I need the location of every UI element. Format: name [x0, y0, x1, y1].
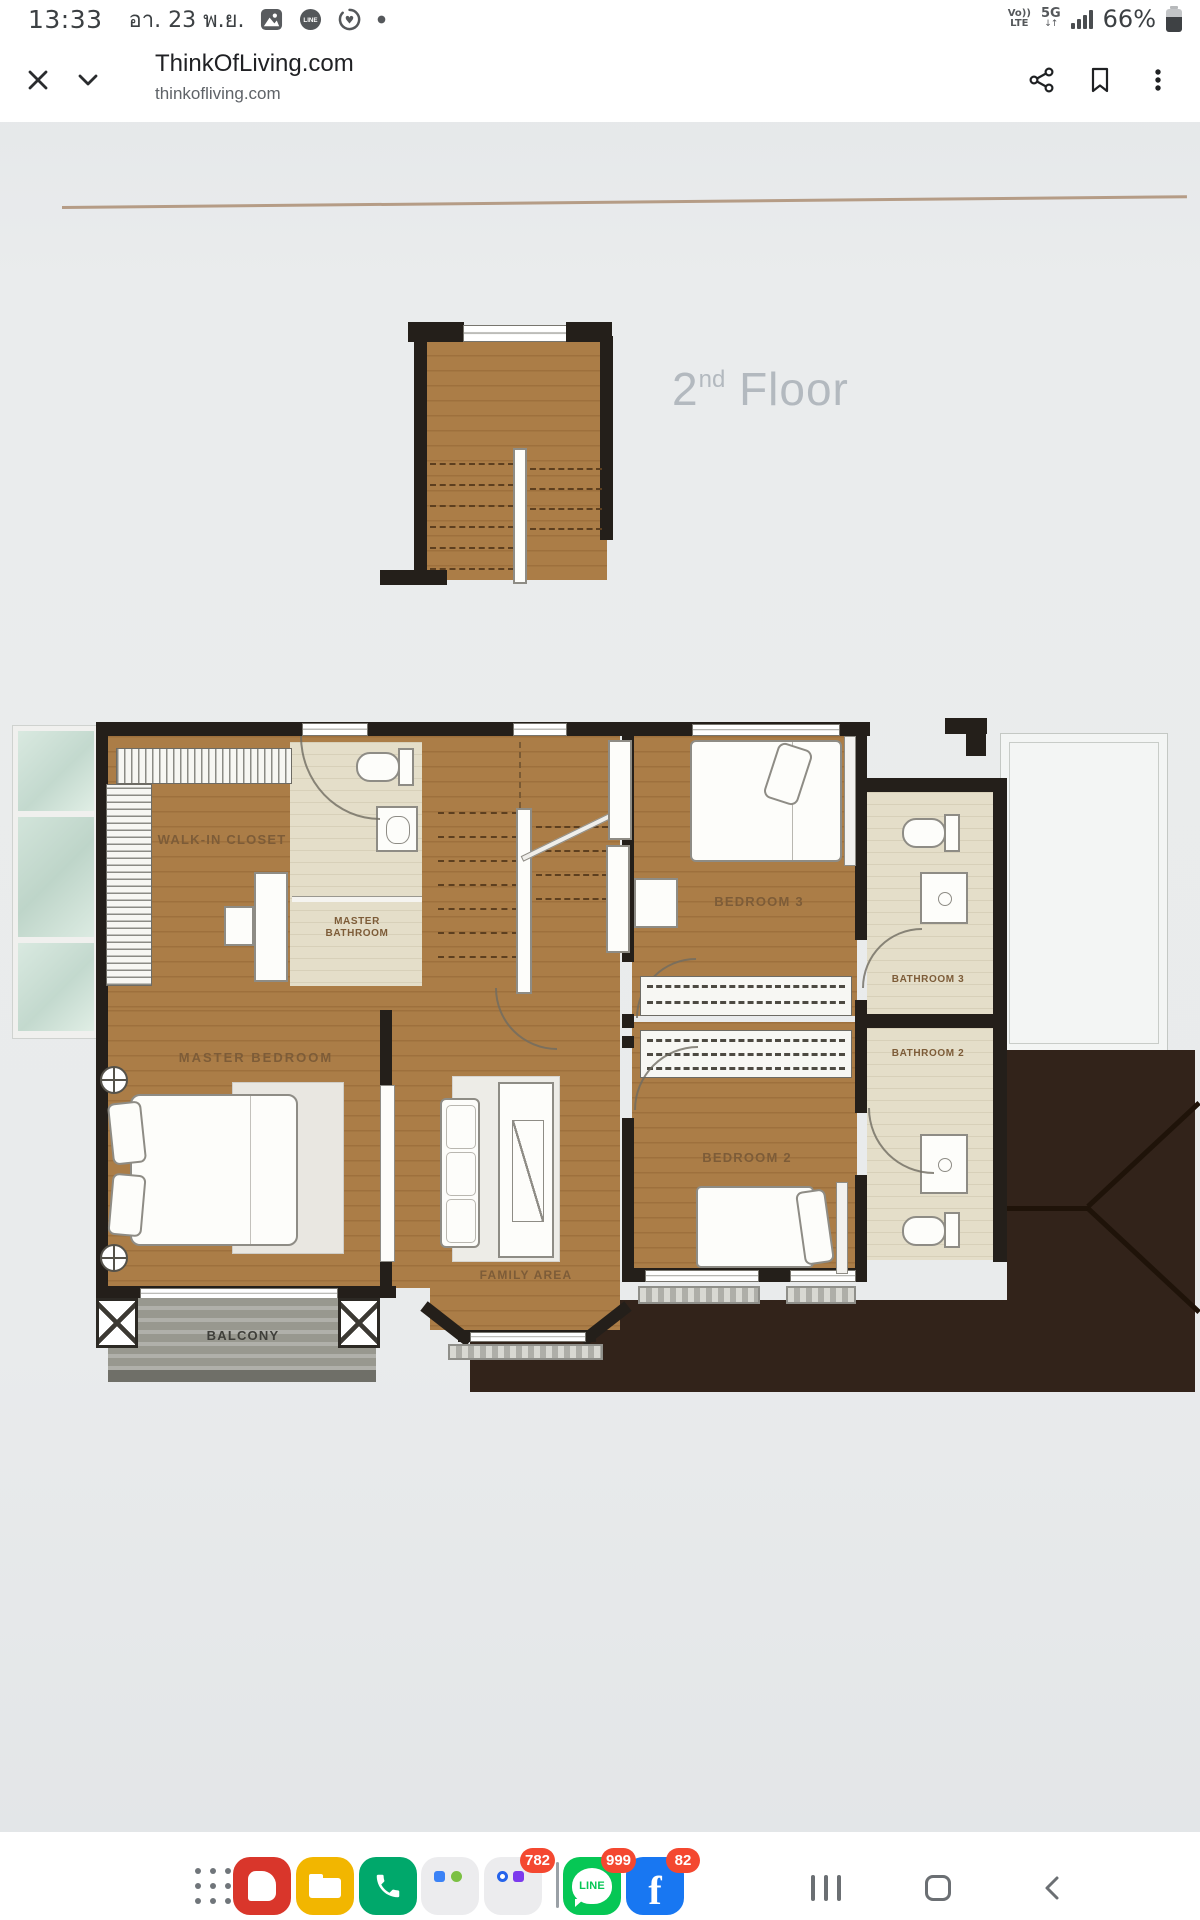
gallery-notification-icon	[260, 8, 283, 31]
door-gap	[302, 723, 368, 736]
toilet	[902, 818, 946, 848]
window	[463, 325, 569, 342]
wardrobe	[106, 784, 152, 986]
signal-strength-icon	[1071, 9, 1093, 29]
wall	[855, 1014, 1007, 1028]
pillow	[107, 1100, 147, 1165]
back-icon	[1039, 1873, 1065, 1903]
bay-window	[470, 1332, 586, 1342]
notification-badge: 782	[520, 1848, 555, 1873]
wall	[855, 778, 1007, 792]
toilet-tank	[398, 748, 414, 786]
room-label-walk-in-closet: WALK-IN CLOSET	[152, 832, 292, 847]
cased-opening	[380, 1085, 395, 1262]
roof-ridge	[998, 1206, 1090, 1211]
closet-cabinet	[224, 906, 254, 946]
room-label-bathroom-2: BATHROOM 2	[866, 1048, 990, 1060]
stair-railing	[513, 448, 527, 584]
room-label-master-bedroom: MASTER BEDROOM	[178, 1050, 334, 1065]
headboard	[836, 1182, 848, 1274]
room-label-family-area: FAMILY AREA	[468, 1268, 584, 1282]
tv-cabinet	[498, 1082, 554, 1258]
home-icon	[925, 1875, 951, 1901]
window-sill	[448, 1344, 603, 1360]
line-notification-icon: LINE	[299, 8, 322, 31]
room-label-balcony: BALCONY	[168, 1328, 318, 1343]
red-app-icon[interactable]	[233, 1857, 291, 1915]
network-5g-icon: 5G↓↑	[1041, 8, 1061, 30]
collapse-chevron-button[interactable]	[62, 54, 114, 106]
share-button[interactable]	[1016, 54, 1068, 106]
wall	[855, 1028, 867, 1113]
corner-marker	[100, 1066, 128, 1094]
nav-home-button[interactable]	[912, 1862, 964, 1914]
more-notifications-dot	[377, 15, 386, 24]
hall-cabinet	[608, 740, 632, 840]
browser-header: ThinkOfLiving.com thinkofliving.com	[0, 38, 1200, 122]
stairs-main-left	[438, 812, 518, 980]
floor-plan-image: 2nd Floor	[0, 0, 1200, 1920]
wall	[414, 340, 427, 580]
clock: 13:33	[28, 5, 103, 34]
sink-basin	[386, 816, 410, 844]
window-sill	[638, 1286, 760, 1304]
glass-roof-strip	[12, 725, 102, 1039]
pillow	[107, 1173, 146, 1238]
menu-kebab-button[interactable]	[1132, 54, 1184, 106]
toilet	[902, 1216, 946, 1246]
glass-panel	[18, 943, 94, 1031]
folder-glyph	[309, 1874, 341, 1898]
page-url[interactable]: thinkofliving.com	[155, 84, 281, 104]
wall	[622, 1036, 634, 1048]
notification-badge: 999	[601, 1848, 636, 1873]
red-app-glyph	[248, 1871, 276, 1901]
toilet-tank	[944, 814, 960, 852]
plan-top-line	[62, 195, 1187, 209]
phone-screen: 2nd Floor	[0, 0, 1200, 1920]
stair-break-line	[519, 742, 521, 808]
battery-percent: 66%	[1103, 5, 1156, 33]
bed-fold	[250, 1096, 251, 1244]
status-right-cluster: Vo))LTE 5G↓↑ 66%	[1008, 0, 1182, 38]
phone-glyph	[373, 1871, 403, 1901]
bed	[690, 740, 842, 862]
wall	[855, 792, 867, 940]
window	[645, 1270, 759, 1282]
sink	[376, 806, 418, 852]
wall	[622, 1014, 634, 1028]
notification-badge: 82	[666, 1848, 700, 1873]
bed	[130, 1094, 298, 1246]
svg-text:LINE: LINE	[304, 16, 318, 23]
status-date: อา. 23 พ.ย.	[129, 2, 245, 37]
page-title[interactable]: ThinkOfLiving.com	[155, 50, 354, 78]
recents-icon	[811, 1875, 841, 1901]
headboard	[844, 736, 856, 866]
balcony-post	[96, 1298, 138, 1348]
battery-icon	[1166, 6, 1182, 32]
line-bubble-glyph: LINE	[572, 1868, 612, 1904]
folder-mini-icons	[430, 1866, 470, 1906]
app-folder-1[interactable]	[421, 1857, 479, 1915]
wall	[380, 1262, 392, 1298]
glass-panel	[18, 817, 94, 937]
hall-cabinet	[606, 845, 630, 953]
stairs-lower-run	[530, 468, 602, 530]
nav-recents-button[interactable]	[800, 1862, 852, 1914]
room-label-master-bathroom: MASTER BATHROOM	[294, 916, 420, 940]
wardrobe	[116, 748, 292, 784]
files-app-icon[interactable]	[296, 1857, 354, 1915]
status-bar: 13:33 อา. 23 พ.ย. LINE ♥ Vo))LTE 5G↓↑ 66…	[0, 0, 1200, 38]
balcony-rail	[108, 1370, 376, 1382]
balcony-post	[338, 1298, 380, 1348]
nav-back-button[interactable]	[1026, 1862, 1078, 1914]
bookmark-button[interactable]	[1074, 54, 1126, 106]
dresser	[640, 976, 852, 1016]
sofa	[440, 1098, 480, 1248]
facebook-f-glyph: f	[648, 1867, 661, 1914]
wall	[855, 1175, 867, 1270]
room-label-bedroom-2: BEDROOM 2	[690, 1150, 804, 1165]
wall	[945, 718, 987, 734]
wall	[966, 734, 986, 756]
bath-divider	[292, 896, 422, 902]
wall	[380, 1010, 392, 1085]
terrace-inner-line	[1009, 742, 1159, 1044]
stairs-upper-run	[430, 463, 514, 587]
shower-drain	[938, 1158, 952, 1172]
room-label-bathroom-3: BATHROOM 3	[866, 974, 990, 986]
corner-marker	[100, 1244, 128, 1272]
phone-app-icon[interactable]	[359, 1857, 417, 1915]
glass-panel	[18, 731, 94, 811]
tv	[512, 1120, 544, 1222]
wall	[408, 322, 464, 342]
terrace	[1000, 733, 1168, 1053]
app-drawer-icon	[195, 1868, 231, 1904]
room-label-bedroom-3: BEDROOM 3	[702, 894, 816, 909]
window	[692, 724, 840, 736]
door-gap	[513, 723, 567, 736]
toilet-tank	[944, 1212, 960, 1248]
close-button[interactable]	[12, 54, 64, 106]
svg-text:♥: ♥	[345, 14, 354, 26]
health-notification-icon: ♥	[338, 8, 361, 31]
volte-icon: Vo))LTE	[1008, 9, 1031, 29]
shower	[920, 872, 968, 924]
shower-drain	[938, 892, 952, 906]
side-table	[634, 878, 678, 928]
window-sill	[786, 1286, 856, 1304]
stair-railing	[516, 808, 532, 994]
dock-divider	[556, 1862, 559, 1908]
wall	[622, 1118, 634, 1270]
floor-title: 2nd Floor	[672, 362, 849, 416]
closet-cabinet	[254, 872, 288, 982]
